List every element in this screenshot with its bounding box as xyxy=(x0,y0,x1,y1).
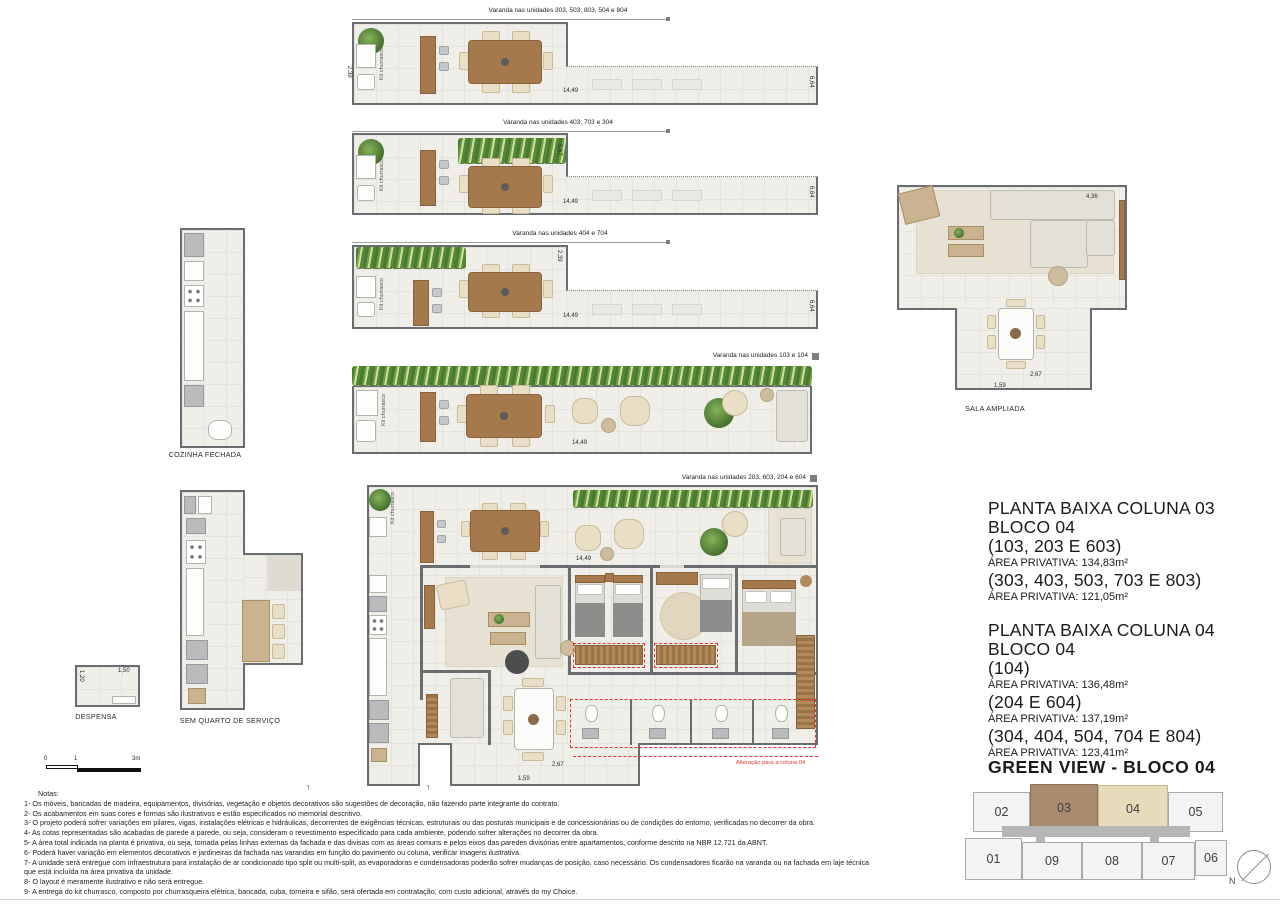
chair-icon xyxy=(512,437,530,447)
kitchen-counter-icon xyxy=(186,568,204,636)
hedge-planter-icon xyxy=(352,366,812,386)
cozinha-label: COZINHA FECHADA xyxy=(160,450,250,459)
plant-icon xyxy=(494,614,504,624)
stool-icon xyxy=(439,160,449,169)
wall xyxy=(650,568,653,672)
unit-number: 02 xyxy=(995,805,1009,819)
counter-appliance-icon xyxy=(184,496,196,514)
stool-icon xyxy=(439,400,449,409)
note-item: 2- Os acabamentos em suas cores e formas… xyxy=(24,809,882,819)
chair-icon xyxy=(503,720,513,735)
chair-icon xyxy=(556,696,566,711)
counter-icon xyxy=(420,150,436,206)
wall xyxy=(420,565,423,700)
washer-icon xyxy=(184,385,204,407)
chair-icon xyxy=(543,175,553,193)
compass-needle xyxy=(1241,854,1269,882)
dim-line xyxy=(352,131,668,132)
chair-icon xyxy=(512,83,530,93)
fridge-icon xyxy=(356,390,378,416)
keyplan-unit-08: 08 xyxy=(1082,842,1142,880)
stool-icon xyxy=(439,46,449,55)
fridge-icon xyxy=(369,723,389,743)
fridge-icon xyxy=(184,233,204,257)
hedge-planter-icon xyxy=(573,490,813,508)
chair-icon xyxy=(543,52,553,70)
dim-line xyxy=(352,242,668,243)
bottom-rule xyxy=(0,899,1280,900)
col04-area-0: ÁREA PRIVATIVA: 136,48m² xyxy=(988,678,1248,693)
varanda3-label: Varanda nas unidades 404 e 704 xyxy=(455,230,665,237)
pillow-icon xyxy=(702,578,730,589)
ghost-table-icon xyxy=(672,304,702,315)
pillow-icon xyxy=(577,584,603,595)
chair-icon xyxy=(272,624,285,639)
lounge-chair-icon xyxy=(614,519,644,549)
chair-icon xyxy=(540,521,549,537)
sofa-chaise-icon xyxy=(1086,220,1115,256)
sofa-icon xyxy=(450,678,484,738)
unit-number: 08 xyxy=(1105,854,1119,868)
chair-icon xyxy=(503,696,513,711)
wall xyxy=(488,670,491,745)
note-item: 7- A unidade será entregue com infraestr… xyxy=(24,858,882,878)
counter-icon xyxy=(420,392,436,442)
scale-tick-0: 0 xyxy=(44,756,47,762)
dim-label: 6,64 xyxy=(808,300,814,312)
wall xyxy=(422,670,490,673)
sink-icon xyxy=(369,517,387,537)
kitchen-counter-icon xyxy=(184,311,204,381)
chair-icon xyxy=(543,280,553,298)
col04-units-2: (304, 404, 504, 704 E 804) xyxy=(988,727,1248,746)
varanda4-label: Varanda nas unidades 103 e 104 xyxy=(630,352,808,359)
col03-units-1: (303, 403, 503, 703 E 803) xyxy=(988,571,1248,590)
dim-marker xyxy=(666,129,670,133)
note-item: 3- O projeto poderá sofrer variações em … xyxy=(24,818,882,828)
dim-label: 2,39 xyxy=(556,250,562,262)
chair-icon xyxy=(1036,315,1045,329)
dim-label: 1,59 xyxy=(994,383,1006,389)
pouf-icon xyxy=(1048,266,1068,286)
dim-marker xyxy=(666,240,670,244)
kit-churrasco-label: Kit churrasco xyxy=(379,278,385,310)
dim-label: 5,67 xyxy=(556,144,562,156)
wall xyxy=(735,568,738,672)
col04-title-2: BLOCO 04 xyxy=(988,640,1248,659)
armchair-icon xyxy=(780,518,806,556)
hedge-planter-icon xyxy=(356,247,466,269)
dim-label: 14,49 xyxy=(576,556,591,562)
sem-quarto-label: SEM QUARTO DE SERVIÇO xyxy=(155,716,305,725)
ghost-table-icon xyxy=(632,304,662,315)
plant-icon xyxy=(369,489,391,511)
table-centerpiece-icon xyxy=(528,714,539,725)
chair-icon xyxy=(272,644,285,659)
wicker-chair-icon xyxy=(722,511,748,537)
note-item: 1- Os móveis, bancadas de madeira, equip… xyxy=(24,799,882,809)
dim-marker xyxy=(810,475,817,482)
chair-icon xyxy=(272,604,285,619)
sink-icon xyxy=(369,575,387,593)
sliding-door xyxy=(470,565,540,568)
chair-icon xyxy=(556,720,566,735)
sofa-icon xyxy=(535,585,561,659)
note-item: 6- Poderá haver variação em elementos de… xyxy=(24,848,882,858)
table-icon xyxy=(242,600,270,662)
counter-icon xyxy=(413,280,429,326)
dim-label: 2,67 xyxy=(1030,372,1042,378)
chair-icon xyxy=(480,437,498,447)
col03-area-0: ÁREA PRIVATIVA: 134,83m² xyxy=(988,556,1248,571)
stove-icon xyxy=(186,540,206,564)
pillow-icon xyxy=(745,591,767,603)
main-varanda-label: Varanda nas unidades 203, 603, 204 e 604 xyxy=(628,474,806,481)
dim-label: 1,20 xyxy=(78,670,84,682)
blanket-icon xyxy=(700,600,732,632)
sink-icon xyxy=(184,261,204,281)
shelf-icon xyxy=(112,696,136,704)
wicker-chair-icon xyxy=(722,390,748,416)
table-centerpiece-icon xyxy=(501,58,509,66)
scale-bar-segment xyxy=(46,765,78,769)
stool-icon xyxy=(439,416,449,425)
alteracao-label: Alteração para a coluna 04 xyxy=(736,760,805,766)
col03-title-2: BLOCO 04 xyxy=(988,518,1248,537)
floor-mat-icon xyxy=(371,748,387,762)
pouf-icon xyxy=(505,650,529,674)
headboard-icon xyxy=(575,575,605,583)
headboard-icon xyxy=(613,575,643,583)
sofa-chaise-icon xyxy=(1030,220,1088,268)
dim-label: 6,64 xyxy=(808,186,814,198)
chair-icon xyxy=(522,752,544,761)
col04-units-1: (204 E 604) xyxy=(988,693,1248,712)
chair-icon xyxy=(510,551,526,560)
kit-churrasco-label: Kit churrasco xyxy=(379,159,385,191)
unit-number: 06 xyxy=(1204,851,1218,865)
lounge-chair-icon xyxy=(572,398,598,424)
dim-label: 1,50 xyxy=(118,668,130,674)
col03-units-0: (103, 203 E 603) xyxy=(988,537,1248,556)
stool-icon xyxy=(800,575,812,587)
change-line xyxy=(573,756,818,757)
wall xyxy=(568,568,571,672)
unit-number: 04 xyxy=(1126,802,1140,816)
grill-icon xyxy=(357,185,375,201)
change-outline xyxy=(573,643,645,668)
pouf-icon xyxy=(600,547,614,561)
wall xyxy=(568,672,818,675)
keyplan-unit-07: 07 xyxy=(1142,842,1195,880)
dim-label: 4,36 xyxy=(1086,194,1098,200)
dim-label: 14,49 xyxy=(563,313,578,319)
lounge-chair-icon xyxy=(575,525,601,551)
varanda2-label: Varanda nas unidades 403, 703 e 304 xyxy=(447,119,669,126)
chair-icon xyxy=(482,551,498,560)
dim-marker xyxy=(666,17,670,21)
chair-icon xyxy=(522,678,544,687)
nightstand-icon xyxy=(605,573,614,582)
lounge-chair-icon xyxy=(620,396,650,426)
chair-icon xyxy=(461,521,470,537)
ghost-table-icon xyxy=(632,190,662,201)
notes-block: Notas: 1- Os móveis, bancadas de madeira… xyxy=(24,789,882,897)
floor-mat-icon xyxy=(188,688,206,704)
stool-icon xyxy=(437,520,446,528)
plant-icon xyxy=(700,528,728,556)
shelf-icon xyxy=(426,694,438,738)
sala-label: SALA AMPLIADA xyxy=(950,404,1040,413)
dim-label: 14,49 xyxy=(572,440,587,446)
coffee-table-icon xyxy=(490,632,526,645)
stool-icon xyxy=(439,62,449,71)
col04-area-1: ÁREA PRIVATIVA: 137,19m² xyxy=(988,712,1248,727)
keyplan-unit-01: 01 xyxy=(965,838,1022,880)
keyplan-corridor xyxy=(1002,826,1190,837)
blanket-icon xyxy=(575,603,605,637)
floorplan-sheet: Varanda nas unidades 303, 503, 803, 504 … xyxy=(0,0,1280,904)
dim-label: 6,64 xyxy=(808,76,814,88)
col03-area-1: ÁREA PRIVATIVA: 121,05m² xyxy=(988,590,1248,605)
plant-icon xyxy=(954,228,964,238)
dim-label: 14,49 xyxy=(563,199,578,205)
chair-icon xyxy=(987,315,996,329)
dim-label: 14,49 xyxy=(563,88,578,94)
ghost-table-icon xyxy=(672,79,702,90)
floor-accent xyxy=(267,555,301,591)
kit-churrasco-label: Kit churrasco xyxy=(381,394,387,426)
keyplan-unit-04: 04 xyxy=(1098,785,1168,832)
ghost-table-icon xyxy=(672,190,702,201)
side-table-icon xyxy=(760,388,774,402)
chair-icon xyxy=(1006,299,1026,307)
chair-icon xyxy=(987,335,996,349)
sink-icon xyxy=(356,420,376,442)
kit-churrasco-label: Kit churrasco xyxy=(390,492,396,524)
keyplan-unit-09: 09 xyxy=(1022,842,1082,880)
scale-tick-3m: 3m xyxy=(132,756,140,762)
toilet-icon xyxy=(208,420,232,440)
unit-number: 07 xyxy=(1162,854,1176,868)
change-outline xyxy=(570,699,816,748)
stove-icon xyxy=(369,615,387,635)
dim-label: 1,59 xyxy=(518,776,530,782)
note-item: 5- A área total indicada na planta é pri… xyxy=(24,838,882,848)
kitchen-counter-icon xyxy=(369,638,387,696)
ghost-table-icon xyxy=(592,79,622,90)
coffee-table-icon xyxy=(948,244,984,257)
sofa-icon xyxy=(776,390,808,442)
info-block: PLANTA BAIXA COLUNA 03 BLOCO 04 (103, 20… xyxy=(988,499,1248,761)
table-centerpiece-icon xyxy=(501,527,509,535)
keyplan-title: GREEN VIEW - BLOCO 04 xyxy=(988,757,1216,778)
door-panel-icon xyxy=(1119,200,1125,280)
headboard-icon xyxy=(742,580,796,589)
despensa-label: DESPENSA xyxy=(65,712,127,721)
stove-icon xyxy=(184,285,204,307)
varanda1-label: Varanda nas unidades 303, 503, 803, 504 … xyxy=(447,7,669,14)
unit-number: 01 xyxy=(987,852,1001,866)
counter-appliance-icon xyxy=(186,518,206,534)
chair-icon xyxy=(1036,335,1045,349)
ghost-table-icon xyxy=(592,190,622,201)
pillow-icon xyxy=(615,584,641,595)
washer-icon xyxy=(186,640,208,660)
dim-label: 2,67 xyxy=(552,762,564,768)
pillow-icon xyxy=(770,591,792,603)
table-centerpiece-icon xyxy=(500,412,508,420)
grill-icon xyxy=(357,74,375,90)
unit-number: 05 xyxy=(1189,805,1203,819)
note-item: 9- A entrega do kit churrasco, composto … xyxy=(24,887,882,897)
table-centerpiece-icon xyxy=(1010,328,1021,339)
unit-number: 09 xyxy=(1045,854,1059,868)
ghost-table-icon xyxy=(592,304,622,315)
ghost-table-icon xyxy=(632,79,662,90)
north-label: N xyxy=(1229,876,1236,886)
chair-icon xyxy=(1006,361,1026,369)
sink-icon xyxy=(356,276,376,298)
kit-churrasco-label: Kit churrasco xyxy=(379,48,385,80)
counter-icon xyxy=(420,36,436,94)
dryer-icon xyxy=(186,664,208,684)
stool-icon xyxy=(432,304,442,313)
grill-icon xyxy=(357,302,375,317)
stool-icon xyxy=(437,535,446,543)
north-compass-icon xyxy=(1237,850,1271,884)
dim-label: 2,39 xyxy=(346,66,352,78)
note-item: 8- O layout é meramente ilustrativo e nã… xyxy=(24,877,882,887)
sink-icon xyxy=(356,44,376,68)
pouf-icon xyxy=(601,418,616,433)
col04-title-1: PLANTA BAIXA COLUNA 04 xyxy=(988,621,1248,640)
notes-title: Notas: xyxy=(24,789,882,799)
unit-number: 03 xyxy=(1057,801,1071,815)
scale-bar-segment xyxy=(77,768,141,772)
sliding-door xyxy=(660,565,684,568)
counter-icon xyxy=(420,511,434,563)
col03-title-1: PLANTA BAIXA COLUNA 03 xyxy=(988,499,1248,518)
keyplan-unit-03: 03 xyxy=(1030,784,1098,832)
note-item: 4- As cotas representadas são acabadas d… xyxy=(24,828,882,838)
tv-cabinet-icon xyxy=(424,585,435,629)
washer-icon xyxy=(369,700,389,720)
scale-tick-1: 1 xyxy=(74,756,77,762)
sink-icon xyxy=(356,155,376,179)
dim-marker xyxy=(812,353,819,360)
col04-units-0: (104) xyxy=(988,659,1248,678)
keyplan-unit-06: 06 xyxy=(1195,840,1227,876)
stool-icon xyxy=(439,176,449,185)
stool-icon xyxy=(432,288,442,297)
table-centerpiece-icon xyxy=(501,288,509,296)
table-centerpiece-icon xyxy=(501,183,509,191)
blanket-icon xyxy=(742,612,796,646)
counter-appliance-icon xyxy=(369,596,387,612)
chair-icon xyxy=(545,405,555,423)
dim-line xyxy=(352,19,668,20)
change-outline xyxy=(654,643,718,668)
chair-icon xyxy=(482,83,500,93)
blanket-icon xyxy=(613,603,643,637)
sink-icon xyxy=(198,496,212,514)
desk-icon xyxy=(656,572,698,585)
